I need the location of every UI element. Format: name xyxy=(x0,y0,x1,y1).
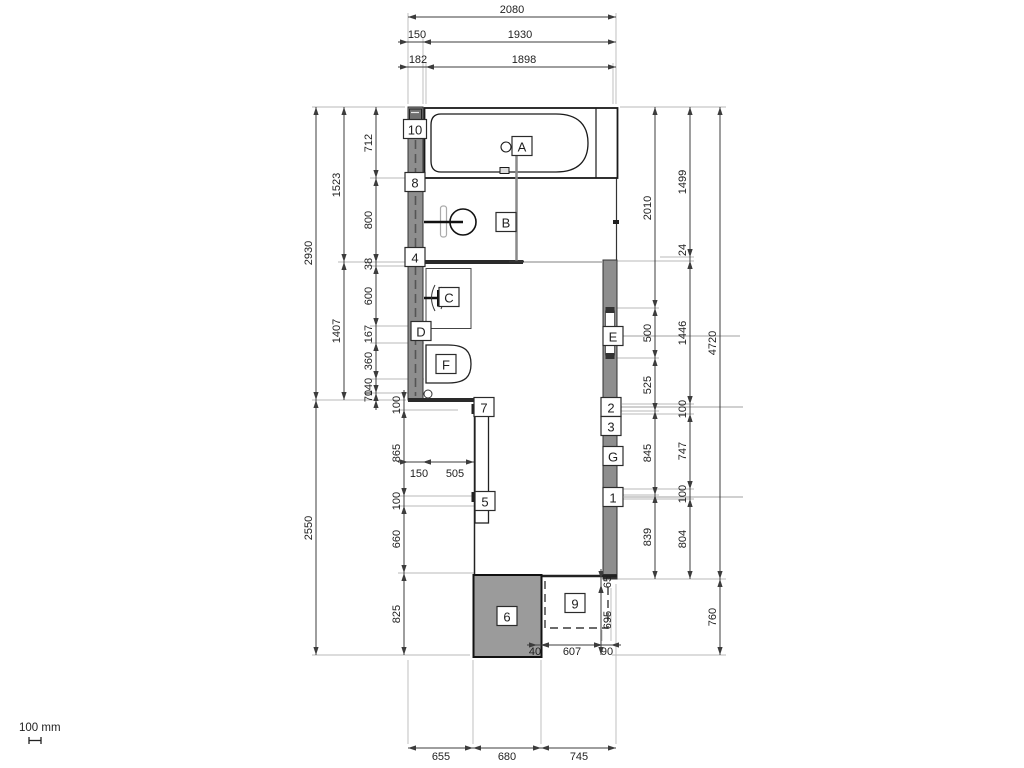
dim-arrow xyxy=(652,487,657,495)
callout-label: B xyxy=(502,216,511,231)
dim-arrow xyxy=(608,64,616,69)
dim-90: 90 xyxy=(592,642,621,658)
callout-label: 3 xyxy=(607,420,614,435)
dim-label: 845 xyxy=(642,444,654,462)
callout-B: B xyxy=(496,213,516,232)
dim-label: 150 xyxy=(410,468,428,480)
dim-arrow xyxy=(465,745,473,750)
dim-arrow xyxy=(717,579,722,587)
dim-747: 747 xyxy=(677,414,693,489)
dim-label: 2550 xyxy=(303,516,315,540)
dim-660: 660 xyxy=(391,506,407,573)
dim-1523: 1523 xyxy=(331,107,347,262)
dim-label: 712 xyxy=(363,134,375,152)
callout-label: 2 xyxy=(607,401,614,416)
dim-label: 38 xyxy=(363,258,375,270)
dim-label: 655 xyxy=(432,751,450,763)
wall-end-detail xyxy=(424,390,432,398)
dim-680: 680 xyxy=(473,745,541,763)
dim-arrow xyxy=(687,107,692,115)
callout-label: G xyxy=(608,450,618,465)
dim-arrow xyxy=(373,178,378,186)
dim-839: 839 xyxy=(642,495,658,579)
dim-804: 804 xyxy=(677,499,693,579)
callout-label: C xyxy=(444,291,453,306)
dim-arrow xyxy=(400,39,408,44)
dim-arrow xyxy=(652,308,657,316)
callout-9: 9 xyxy=(565,594,585,613)
dim-825: 825 xyxy=(391,573,407,655)
dim-arrow xyxy=(652,300,657,308)
dim-arrow xyxy=(408,14,416,19)
dim-label: 65 xyxy=(602,576,614,588)
dim-label: 525 xyxy=(642,376,654,394)
dim-arrow xyxy=(313,392,318,400)
callout-E: E xyxy=(603,327,623,346)
callout-8: 8 xyxy=(405,173,425,192)
dim-arrow xyxy=(687,261,692,269)
dim-2010: 2010 xyxy=(642,107,658,308)
dim-label: 804 xyxy=(677,530,689,548)
dim-label: 150 xyxy=(408,29,426,41)
callout-label: F xyxy=(442,358,450,373)
dim-1407: 1407 xyxy=(331,262,347,400)
wall-fixture-10 xyxy=(410,109,422,120)
dim-arrow xyxy=(533,745,541,750)
dim-500: 500 xyxy=(642,308,658,358)
scale-indicator: 100 mm xyxy=(19,722,61,744)
dim-label: 70 xyxy=(363,390,375,402)
dim-arrow xyxy=(652,411,657,419)
partition-wall-lower xyxy=(408,398,476,402)
callout-A: A xyxy=(512,137,532,156)
dim-arrow xyxy=(426,64,434,69)
dim-label: 760 xyxy=(707,608,719,626)
dim-arrow xyxy=(423,459,431,464)
dim-arrow xyxy=(313,647,318,655)
dim-1499: 1499 xyxy=(677,107,693,257)
callout-C: C xyxy=(439,288,459,307)
callout-labels: ABCDEFG12345678910 xyxy=(404,120,624,626)
bathroom-floor-plan: 2080150193018218982930255015231407712800… xyxy=(0,0,1024,768)
dim-label: 4720 xyxy=(707,331,719,355)
door-cap-top xyxy=(606,307,615,313)
dim-arrow xyxy=(652,107,657,115)
callout-F: F xyxy=(436,355,456,374)
dim-label: 2080 xyxy=(500,4,524,16)
dim-2930: 2930 xyxy=(303,107,319,400)
dim-label: 100 xyxy=(677,400,689,418)
callout-label: D xyxy=(416,325,425,340)
dim-arrow xyxy=(608,14,616,19)
dim-label: 1446 xyxy=(677,321,689,345)
callout-label: A xyxy=(518,140,527,155)
dim-arrow xyxy=(466,459,474,464)
dim-arrow xyxy=(717,571,722,579)
dim-label: 360 xyxy=(363,352,375,370)
callout-6: 6 xyxy=(497,607,517,626)
dim-label: 2930 xyxy=(303,241,315,265)
dim-712: 712 xyxy=(363,107,379,178)
dim-arrow xyxy=(473,745,481,750)
bathtub-fitting xyxy=(500,168,509,174)
callout-label: 5 xyxy=(481,495,488,510)
dim-865: 865 xyxy=(391,410,407,496)
callout-label: 9 xyxy=(571,597,578,612)
dim-arrow xyxy=(373,107,378,115)
callout-G: G xyxy=(603,447,623,466)
dim-label: 825 xyxy=(391,605,403,623)
dim-4720: 4720 xyxy=(707,107,723,579)
callout-7: 7 xyxy=(474,398,494,417)
dim-label: 182 xyxy=(409,54,427,66)
dim-arrow xyxy=(408,745,416,750)
dim-label: 1499 xyxy=(677,170,689,194)
dim-1898: 1898 xyxy=(426,54,616,70)
dim-arrow xyxy=(341,107,346,115)
dim-745: 745 xyxy=(541,745,616,763)
dim-arrow xyxy=(652,571,657,579)
callout-label: 10 xyxy=(408,123,422,138)
dim-845: 845 xyxy=(642,411,658,495)
dim-label: 745 xyxy=(570,751,588,763)
dim-arrow xyxy=(652,358,657,366)
dim-760: 760 xyxy=(707,579,723,655)
dim-arrow xyxy=(313,400,318,408)
dim-label: 747 xyxy=(677,442,689,460)
dim-arrow xyxy=(373,170,378,178)
dim-1930: 1930 xyxy=(423,29,616,45)
dim-arrow xyxy=(608,39,616,44)
dim-2550: 2550 xyxy=(303,400,319,655)
dim-arrow xyxy=(687,571,692,579)
dim-arrow xyxy=(341,262,346,270)
floor-plan-canvas: 2080150193018218982930255015231407712800… xyxy=(0,0,1024,768)
partition-wall-top xyxy=(424,260,523,264)
dim-label: 100 xyxy=(391,396,403,414)
dim-label: 24 xyxy=(677,244,689,256)
dim-label: 1930 xyxy=(508,29,532,41)
scale-label: 100 mm xyxy=(19,722,61,734)
dim-label: 100 xyxy=(391,492,403,510)
dim-label: 2010 xyxy=(642,196,654,220)
callout-5: 5 xyxy=(475,492,495,511)
dim-label: 607 xyxy=(563,646,581,658)
dim-arrow xyxy=(373,318,378,326)
bathtub-drain xyxy=(501,142,511,152)
callout-4: 4 xyxy=(405,248,425,267)
dim-label: 1523 xyxy=(331,173,343,197)
dim-505: 505 xyxy=(423,459,474,480)
hinge-tick xyxy=(613,220,619,224)
dim-arrow xyxy=(401,565,406,573)
callout-label: 6 xyxy=(503,610,510,625)
dim-arrow xyxy=(341,254,346,262)
dim-arrow xyxy=(373,343,378,351)
dim-arrow xyxy=(341,392,346,400)
dim-525: 525 xyxy=(642,358,658,411)
dim-800: 800 xyxy=(363,178,379,262)
fixtures xyxy=(424,108,618,657)
dim-label: 680 xyxy=(498,751,516,763)
dim-2080: 2080 xyxy=(408,4,616,20)
dim-arrow xyxy=(541,745,549,750)
dim-label: 100 xyxy=(677,485,689,503)
dim-label: 500 xyxy=(642,324,654,342)
dim-arrow xyxy=(400,64,408,69)
dim-label: 600 xyxy=(363,287,375,305)
dim-arrow xyxy=(717,647,722,655)
dim-label: 1407 xyxy=(331,319,343,343)
callout-label: 8 xyxy=(411,176,418,191)
dim-655: 655 xyxy=(408,745,473,763)
dim-arrow xyxy=(401,647,406,655)
dim-label: 695 xyxy=(602,611,614,629)
dim-1446: 1446 xyxy=(677,261,693,404)
dim-label: 865 xyxy=(391,444,403,462)
dim-label: 800 xyxy=(363,211,375,229)
dim-label: 839 xyxy=(642,528,654,546)
dim-arrow xyxy=(401,573,406,581)
dim-label: 1898 xyxy=(512,54,536,66)
callout-2: 2 xyxy=(601,398,621,417)
callout-1: 1 xyxy=(603,488,623,507)
dim-label: 660 xyxy=(391,530,403,548)
callout-3: 3 xyxy=(601,417,621,436)
callout-D: D xyxy=(411,322,431,341)
dim-arrow xyxy=(717,107,722,115)
callout-10: 10 xyxy=(404,120,427,139)
dim-arrow xyxy=(373,371,378,379)
callout-label: 4 xyxy=(411,251,418,266)
dim-label: 167 xyxy=(363,325,375,343)
dim-label: 40 xyxy=(529,646,541,658)
callout-label: E xyxy=(609,330,618,345)
callout-label: 7 xyxy=(480,401,487,416)
dim-arrow xyxy=(313,107,318,115)
callout-label: 1 xyxy=(609,491,616,506)
dim-arrow xyxy=(652,350,657,358)
dim-arrow xyxy=(608,745,616,750)
dim-label: 505 xyxy=(446,468,464,480)
door-cap-bottom xyxy=(606,353,615,359)
